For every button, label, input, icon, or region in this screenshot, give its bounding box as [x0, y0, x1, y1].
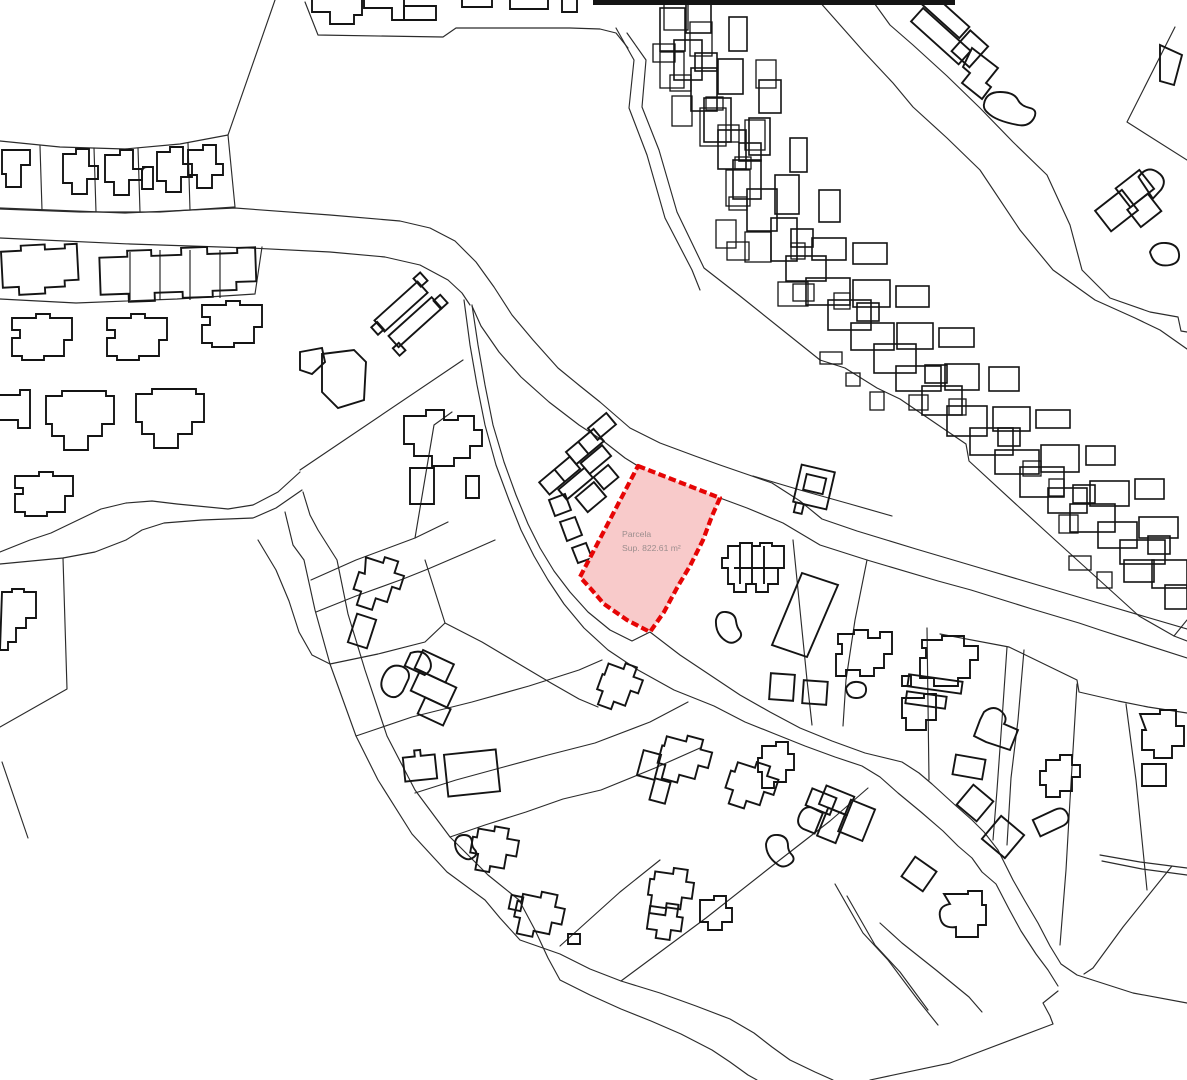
svg-text:Sup. 822.61 m²: Sup. 822.61 m²: [622, 543, 681, 553]
svg-text:Parcela: Parcela: [622, 529, 651, 539]
